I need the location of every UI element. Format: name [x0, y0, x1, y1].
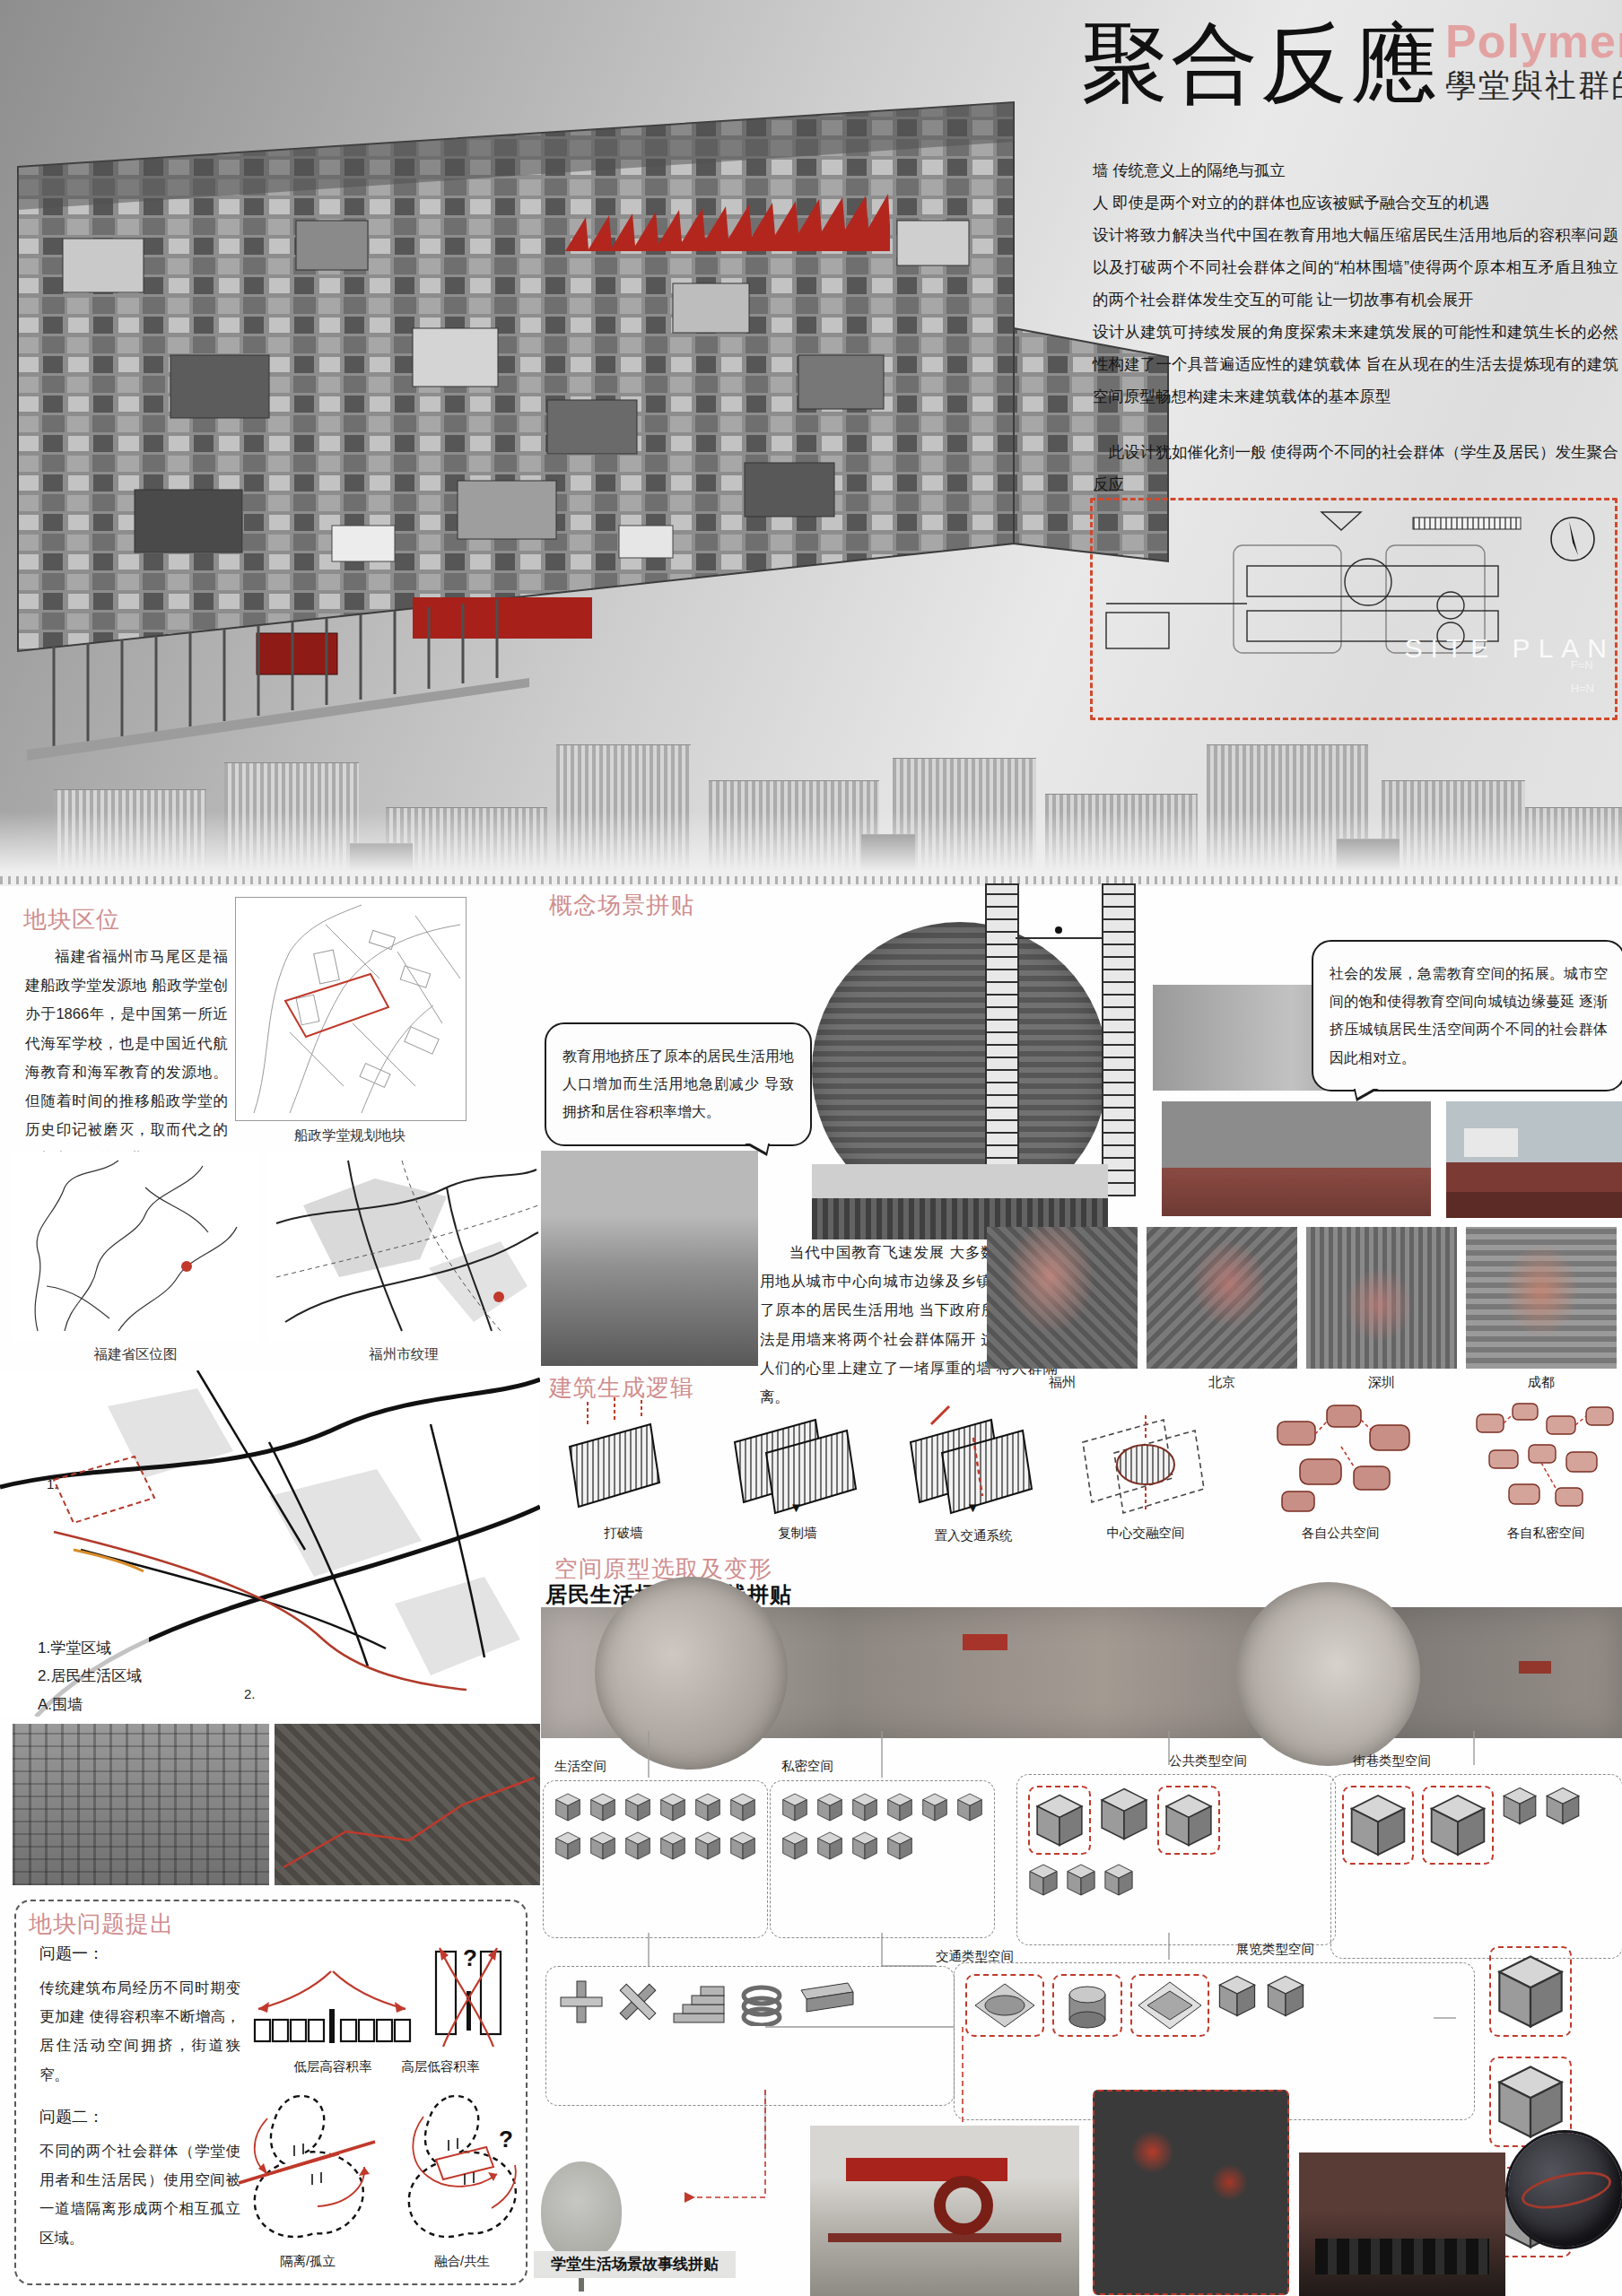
satellite-photo-shenzhen [1306, 1227, 1457, 1369]
isometric-cube-icon [589, 1792, 616, 1822]
legend-item: 2.居民生活区域 [38, 1662, 144, 1690]
site-boundary-red [283, 1778, 535, 1867]
problems-box: 地块问题提出 问题一： 传统建筑布局经历不同时期变更加建 使得容积率不断增高，居… [14, 1900, 528, 2285]
group-traffic-space [545, 1966, 955, 2106]
street-cube-framed [1422, 1786, 1494, 1865]
diagram-lowrise-far [248, 1964, 418, 2054]
typology-label-street: 街巷类型空间 [1353, 1752, 1431, 1770]
school-zone-outline [54, 1457, 154, 1523]
globe-photo [1508, 2133, 1622, 2247]
isometric-cube-icon [1502, 1786, 1538, 1826]
logic-step-label: 各自私密空间 [1461, 1525, 1622, 1542]
audience-silhouettes [1315, 2239, 1489, 2274]
typology-label-life: 生活空间 [554, 1758, 606, 1775]
cross-node-icon [557, 1978, 606, 2026]
diagram-break-wall [547, 1397, 700, 1516]
isolation-label: 隔离/孤立 [231, 2253, 384, 2270]
isometric-cube-icon [781, 1792, 808, 1822]
speech-bubble-left: 教育用地挤压了原本的居民生活用地 人口增加而生活用地急剧减少 导致拥挤和居住容积… [545, 1022, 812, 1146]
section-heading-location: 地块区位 [23, 904, 120, 935]
province-map-caption: 福建省区位图 [11, 1345, 260, 1364]
down-arrow-icon: ▼ [789, 1500, 803, 1515]
highrise-label: 高层低容积率 [364, 2058, 517, 2075]
isometric-cube-icon [921, 1792, 948, 1822]
group-street-space [1330, 1774, 1622, 1959]
speech-bubble-right: 社会的发展，急需教育空间的拓展。城市空间的饱和使得教育空间向城镇边缘蔓延 逐渐挤… [1312, 940, 1622, 1091]
isometric-cube-icon [1066, 1863, 1096, 1897]
exhibit-diamond-framed [1130, 1974, 1209, 2037]
plot-map-caption: 船政学堂规划地块 [235, 1126, 465, 1145]
ground-fog [0, 812, 1622, 886]
isometric-cube-icon [729, 1831, 756, 1861]
bubble-right-text: 社会的发展，急需教育空间的拓展。城市空间的饱和使得教育空间向城镇边缘蔓延 逐渐挤… [1330, 966, 1608, 1065]
intro-line: 设计从建筑可持续发展的角度探索未来建筑发展的可能性和建筑生长的必然性构建了一个具… [1093, 316, 1618, 413]
isometric-cube-icon [1103, 1863, 1134, 1897]
city-label: 成都 [1466, 1374, 1617, 1391]
isometric-cube-icon [694, 1792, 721, 1822]
site-plan-label: SITE PLAN [1389, 633, 1615, 664]
city-map-caption: 福州市纹理 [267, 1345, 540, 1364]
red-accent [1519, 1661, 1551, 1674]
street-cube-framed [1342, 1786, 1414, 1865]
street-panorama-photo [541, 1151, 758, 1366]
exhibit-dome-framed [965, 1974, 1044, 2037]
diagram-insert-circulation [897, 1397, 1050, 1516]
satellite-photo-beijing [1147, 1227, 1297, 1369]
isometric-cube-icon [694, 1831, 721, 1861]
isometric-cube-icon [1164, 1792, 1214, 1848]
problem1-text: 传统建筑布局经历不同时期变更加建 使得容积率不断增高，居住活动空间拥挤，街道狭窄… [39, 1973, 240, 2089]
isometric-cube-icon [956, 1792, 983, 1822]
title-block: 聚合反應Polymerization學堂與社群的共生 [1081, 20, 1619, 107]
city-label: 北京 [1147, 1374, 1297, 1391]
isometric-cube-icon [1099, 1786, 1149, 1842]
diagram-isolation [231, 2092, 384, 2253]
presentation-board: 聚合反應Polymerization學堂與社群的共生 墙 传统意义上的隔绝与孤立… [0, 0, 1622, 2296]
dome-icon [972, 1980, 1038, 2031]
diagram-copy-wall [721, 1397, 874, 1516]
group-private-space [770, 1780, 995, 1938]
typology-label-private: 私密空间 [781, 1758, 833, 1775]
exhibit-cubes [1217, 1974, 1305, 2037]
bubble-left-text: 教育用地挤压了原本的居民生活用地 人口增加而生活用地急剧减少 导致拥挤和居住容积… [562, 1048, 794, 1119]
site-satellite-photo [275, 1724, 540, 1885]
page-title: 聚合反應 [1081, 14, 1440, 112]
isometric-cube-icon [624, 1831, 651, 1861]
diagram-fusion [393, 2092, 528, 2253]
page-title-en: Polymerization [1445, 21, 1622, 63]
group-life-space [543, 1780, 768, 1938]
x-node-icon [614, 1978, 662, 2026]
isometric-cube-icon [554, 1831, 581, 1861]
typology-label-public: 公共类型空间 [1169, 1752, 1247, 1770]
location-p1: 福建省福州市马尾区是福建船政学堂发源地 船政学堂创办于1866年，是中国第一所近… [25, 942, 228, 1172]
isometric-cube-icon [851, 1792, 878, 1822]
isometric-cube-icon [1545, 1786, 1581, 1826]
intro-line: 此设计犹如催化剂一般 使得两个不同的社会群体（学生及居民）发生聚合反应 [1093, 436, 1618, 500]
isometric-cube-icon [781, 1831, 808, 1861]
city-label: 深圳 [1306, 1374, 1457, 1391]
city-texture-map [267, 1152, 540, 1342]
red-accent [963, 1634, 1007, 1650]
isometric-cube-icon [1266, 1974, 1305, 2018]
building-render [0, 59, 1184, 768]
ship-superstructure [1464, 1128, 1518, 1157]
diamond-pad-icon [1137, 1980, 1203, 2031]
logic-step-label: 置入交通系统 [888, 1527, 1059, 1544]
dark-red-donut [934, 2176, 993, 2235]
isometric-cube-icon [816, 1831, 843, 1861]
isometric-cube-icon [659, 1792, 686, 1822]
isometric-cube-icon [1217, 1974, 1257, 2018]
stairs-icon [670, 1978, 728, 2026]
hero-section: 聚合反應Polymerization學堂與社群的共生 墙 传统意义上的隔绝与孤立… [0, 0, 1622, 886]
isometric-cube-icon [886, 1792, 913, 1822]
satellite-photo-chengdu [1466, 1227, 1617, 1369]
old-houses-photo [13, 1724, 269, 1885]
lantern-scene-photo [1093, 2090, 1289, 2295]
diagram-central-space [1069, 1397, 1222, 1516]
isometric-cube-icon [554, 1792, 581, 1822]
school-life-collage: 学堂生活场景故事线拼贴 [541, 2090, 1622, 2296]
filmstrip-divider [0, 876, 1622, 884]
public-cube [1099, 1786, 1149, 1855]
down-arrow-icon: ▼ [966, 1500, 980, 1515]
satellite-photo-fuzhou [987, 1227, 1138, 1369]
cylinder-icon [1059, 1980, 1116, 2031]
section-heading-problems: 地块问题提出 [29, 1909, 174, 1940]
public-cube-framed [1028, 1786, 1091, 1855]
legend-item: A.围墙 [38, 1691, 144, 1718]
plot-boundary-red [285, 974, 388, 1037]
street-cubes-small [1502, 1786, 1581, 1865]
legend-item: 1.学堂区域 [38, 1634, 144, 1662]
tree-watercolor [541, 2161, 622, 2260]
isometric-cube-icon [1028, 1863, 1059, 1897]
site-plan: F=N H=N [1090, 498, 1618, 720]
resident-life-collage [541, 1607, 1622, 1738]
intro-text: 墙 传统意义上的隔绝与孤立 人 即使是两个对立的的群体也应该被赋予融合交互的机遇… [1093, 154, 1618, 500]
red-signage [846, 2158, 1007, 2181]
problem1-title: 问题一： [39, 1943, 104, 1964]
typology-label-exhibition: 展览类型空间 [1236, 1941, 1314, 1958]
isometric-cube-icon [729, 1792, 756, 1822]
isometric-cube-icon [1034, 1792, 1085, 1848]
section-heading-concept: 概念场景拼贴 [549, 890, 694, 921]
note-hn: H=N [1571, 677, 1594, 700]
isometric-cube-icon [659, 1831, 686, 1861]
planning-plot-map [235, 897, 467, 1121]
spiral-ramp-icon [736, 1978, 788, 2026]
diagram-public-spaces [1264, 1395, 1426, 1518]
problem2-title: 问题二： [39, 2106, 104, 2127]
street-wall-photo [1162, 1101, 1431, 1216]
compass-icon [1551, 517, 1594, 561]
province-map [11, 1152, 260, 1342]
isometric-cube-icon [816, 1792, 843, 1822]
group-public-space [1016, 1774, 1336, 1945]
public-cubes-small [1028, 1863, 1134, 1897]
tightrope-figure [1055, 926, 1062, 934]
problem2-text: 不同的两个社会群体（学堂使用者和生活居民）使用空间被一道墙隔离形成两个相互孤立区… [39, 2136, 240, 2252]
site-dot [493, 1291, 504, 1302]
exhibit-cylinder-framed [1052, 1974, 1122, 2037]
logic-step-label: 各自公共空间 [1255, 1525, 1426, 1542]
isometric-cube-icon [886, 1831, 913, 1861]
globe-ring [1518, 2165, 1614, 2215]
site-plan-drawing [1099, 505, 1609, 711]
city-label: 福州 [987, 1374, 1138, 1391]
fusion-label: 融合/共生 [386, 2253, 538, 2270]
intro-line: 人 即使是两个对立的的群体也应该被赋予融合交互的机遇 [1093, 187, 1618, 219]
logic-step-label: 打破墙 [538, 1525, 709, 1542]
isometric-cube-icon [1348, 1792, 1408, 1858]
question-mark: ? [463, 1944, 477, 1972]
isometric-cube-icon [589, 1831, 616, 1861]
isometric-cube-icon [851, 1831, 878, 1861]
bridge-bar-icon [796, 1978, 859, 2013]
isometric-cube-icon [1496, 1952, 1565, 2031]
site-dot [181, 1261, 192, 1272]
public-cube-framed [1157, 1786, 1220, 1855]
tower-collage [985, 883, 1147, 1197]
red-counter [828, 2233, 1061, 2242]
question-mark: ? [499, 2126, 513, 2153]
page-subtitle: 學堂與社群的共生 [1445, 65, 1622, 107]
logic-step-label: 复制墙 [712, 1525, 883, 1542]
logic-step-label: 中心交融空间 [1060, 1525, 1231, 1542]
bottom-caption: 学堂生活场景故事线拼贴 [534, 2251, 736, 2278]
map-marker-2: 2. [244, 1686, 256, 1701]
intro-line: 设计将致力解决当代中国在教育用地大幅压缩居民生活用地后的容积率问题以及打破两个不… [1093, 219, 1618, 316]
theatre-photo [1299, 2152, 1505, 2296]
stack-cube-framed [1489, 1946, 1572, 2037]
map-marker-1: 1. [47, 1476, 58, 1492]
diagram-private-spaces [1469, 1395, 1622, 1518]
ship-photo [1446, 1101, 1622, 1218]
intro-line: 墙 传统意义上的隔绝与孤立 [1093, 154, 1618, 187]
isometric-cube-icon [1428, 1792, 1487, 1858]
isometric-cube-icon [624, 1792, 651, 1822]
